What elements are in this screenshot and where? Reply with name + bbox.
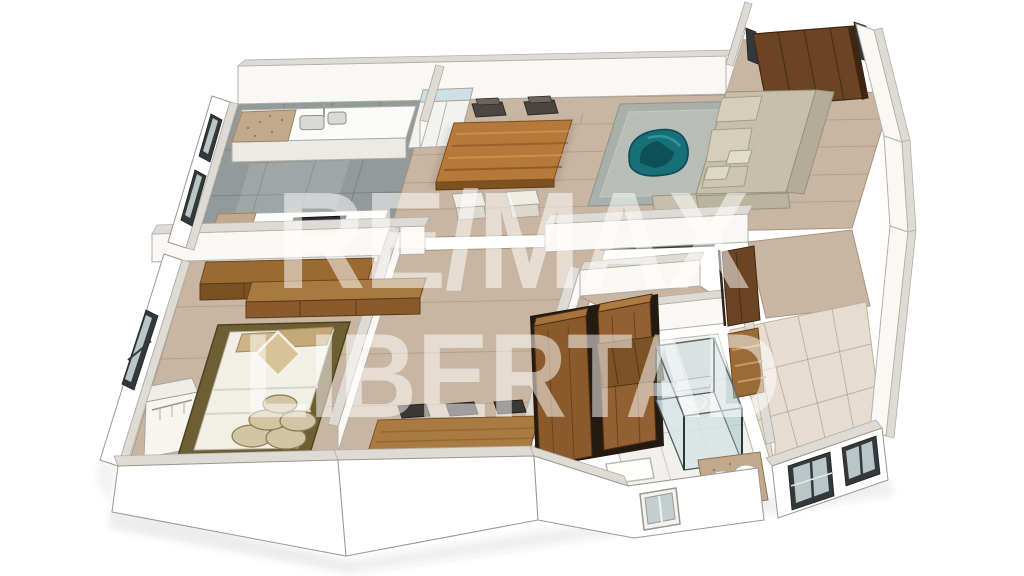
kitchen-granite-corner: [232, 110, 296, 142]
bathroom-door: [597, 336, 664, 388]
wardrobe-door-1: [534, 316, 592, 466]
sofa-pillow-1: [704, 166, 730, 180]
white-chair-2: [506, 190, 540, 218]
white-chair-1: [452, 192, 486, 220]
table-top: [436, 120, 572, 182]
floorplan-render: RE/MAX LIBERTAD: [0, 0, 1024, 576]
bathroom-window: [640, 488, 680, 530]
floorplan-scene: [0, 0, 1024, 576]
floating-cabinets-lower: [246, 278, 426, 318]
sofa-pillow-2: [726, 150, 752, 164]
laundry-door: [719, 246, 760, 326]
sofa-cushion-2: [716, 96, 762, 122]
